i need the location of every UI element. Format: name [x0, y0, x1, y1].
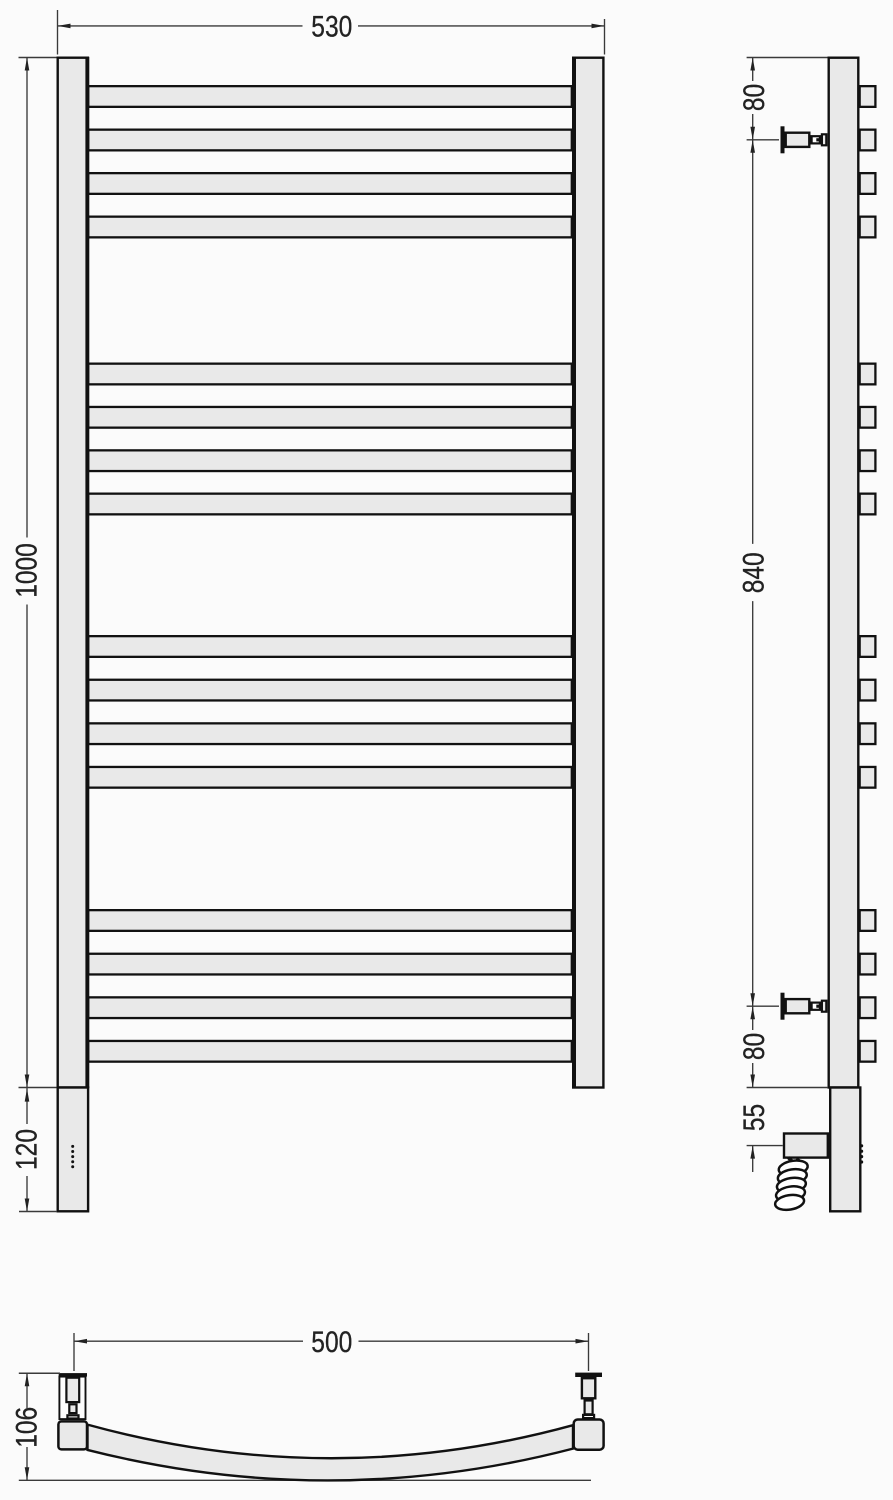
svg-text:840: 840: [736, 552, 770, 593]
svg-text:530: 530: [311, 9, 352, 43]
svg-text:1000: 1000: [9, 543, 43, 598]
svg-text:80: 80: [737, 84, 771, 111]
svg-text:55: 55: [737, 1104, 771, 1131]
svg-text:120: 120: [9, 1129, 43, 1170]
svg-text:500: 500: [311, 1325, 352, 1359]
svg-text:80: 80: [737, 1033, 771, 1060]
svg-text:106: 106: [9, 1407, 43, 1448]
